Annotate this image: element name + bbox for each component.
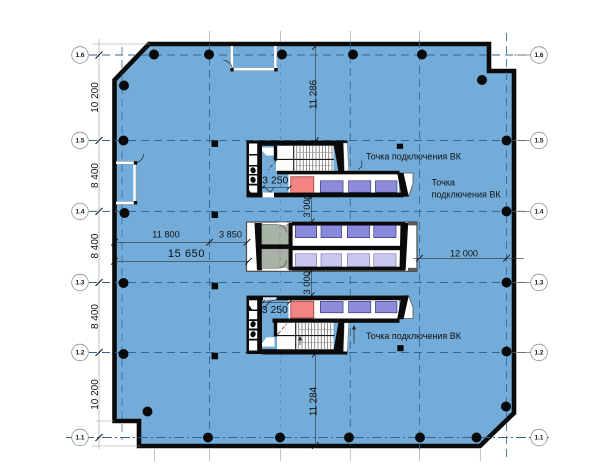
svg-text:Точка подключения ВК: Точка подключения ВК <box>366 331 462 341</box>
svg-text:1.5: 1.5 <box>535 138 544 145</box>
svg-text:1.2: 1.2 <box>76 350 85 357</box>
svg-text:3 850: 3 850 <box>219 229 242 239</box>
svg-text:3 000: 3 000 <box>301 194 312 217</box>
svg-text:3 250: 3 250 <box>262 305 288 316</box>
svg-text:подключения ВК: подключения ВК <box>432 190 502 200</box>
svg-text:1.2: 1.2 <box>535 350 544 357</box>
svg-text:10 200: 10 200 <box>90 379 101 410</box>
svg-text:1.4: 1.4 <box>76 209 85 216</box>
svg-text:11 286: 11 286 <box>309 79 320 109</box>
svg-text:8 400: 8 400 <box>90 304 101 329</box>
svg-text:1.6: 1.6 <box>535 52 544 59</box>
svg-text:1.6: 1.6 <box>76 52 85 59</box>
svg-text:Точка подключения ВК: Точка подключения ВК <box>366 151 462 161</box>
svg-text:11 284: 11 284 <box>309 386 320 416</box>
svg-text:15 650: 15 650 <box>168 248 205 260</box>
svg-text:Точка: Точка <box>432 178 455 188</box>
svg-text:10 200: 10 200 <box>90 82 101 113</box>
svg-text:1.3: 1.3 <box>76 280 85 287</box>
svg-text:1.4: 1.4 <box>535 209 544 216</box>
svg-text:3 000: 3 000 <box>301 271 312 294</box>
svg-text:8 400: 8 400 <box>90 163 101 188</box>
svg-text:8 400: 8 400 <box>90 233 101 258</box>
svg-text:3 250: 3 250 <box>262 176 288 187</box>
svg-text:1.3: 1.3 <box>535 280 544 287</box>
svg-text:11 800: 11 800 <box>152 229 179 239</box>
svg-text:12 000: 12 000 <box>450 248 478 258</box>
svg-text:1.1: 1.1 <box>76 435 85 442</box>
svg-text:1.1: 1.1 <box>535 435 544 442</box>
svg-text:1.5: 1.5 <box>76 138 85 145</box>
